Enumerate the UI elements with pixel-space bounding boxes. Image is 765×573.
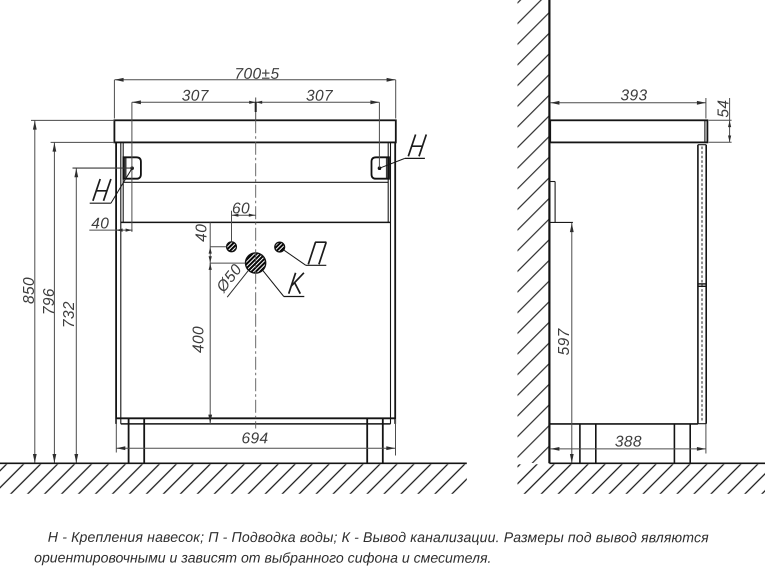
svg-text:400: 400 xyxy=(191,326,208,353)
svg-text:307: 307 xyxy=(306,88,334,105)
svg-text:388: 388 xyxy=(615,433,642,450)
svg-text:796: 796 xyxy=(41,288,58,315)
svg-text:597: 597 xyxy=(556,327,573,355)
svg-text:40: 40 xyxy=(91,215,109,232)
svg-text:Н - Крепления навесок; П - Под: Н - Крепления навесок; П - Подводка воды… xyxy=(48,529,709,545)
svg-text:850: 850 xyxy=(21,277,38,304)
svg-text:ориентировочными и зависят от: ориентировочными и зависят от выбранного… xyxy=(34,549,491,565)
svg-text:40: 40 xyxy=(193,224,210,242)
svg-text:307: 307 xyxy=(182,88,210,105)
svg-text:732: 732 xyxy=(61,301,78,328)
svg-text:60: 60 xyxy=(232,200,250,217)
svg-text:54: 54 xyxy=(715,100,732,118)
svg-text:694: 694 xyxy=(241,430,268,447)
svg-text:700±5: 700±5 xyxy=(234,66,279,83)
svg-text:393: 393 xyxy=(620,87,647,104)
